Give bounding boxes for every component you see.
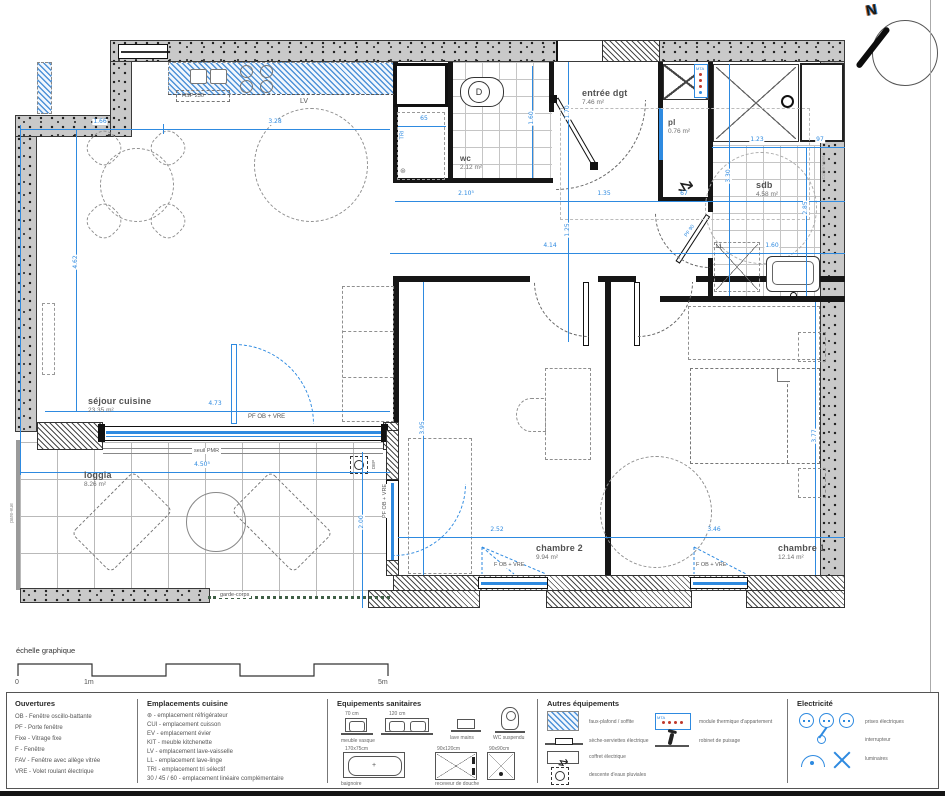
lave-mains-icon — [457, 719, 475, 729]
wall-bottom-band-b — [546, 590, 692, 608]
receveur90-icon — [487, 752, 515, 780]
lv-label: LV — [300, 98, 308, 105]
legend-item: 30 / 45 / 60 - emplacement linéaire comp… — [147, 775, 284, 785]
mta-label: MTA — [696, 66, 704, 71]
dim: 4.14 — [542, 243, 557, 249]
wall-bottom — [393, 575, 845, 591]
dim: 3.95 — [420, 420, 426, 435]
wall-top — [110, 40, 845, 62]
scale-bar — [14, 656, 394, 680]
scale-tick-5m: 5m — [378, 679, 388, 686]
floor-plan: pare-vue HSP 230 LV ⊛ TRI D MTA — [0, 0, 945, 800]
dim: 1.66 — [92, 119, 107, 125]
point-lumineux-icon — [831, 749, 853, 771]
receveur120-icon — [435, 752, 477, 780]
room-sejour-area: 23.35 m² — [88, 407, 114, 414]
mta-icon: MTA — [655, 713, 691, 730]
loggia-low-wall — [20, 588, 210, 603]
page-border-bottom — [0, 791, 945, 796]
dim: 1.70 — [565, 104, 571, 119]
ll-label: LL — [716, 243, 723, 250]
hsp-label: HSP 230 — [182, 93, 204, 99]
legend-item: PF - Porte fenêtre — [15, 724, 63, 734]
room-chambre2-label: chambre 2 — [536, 543, 583, 553]
chambre1-bed — [690, 368, 820, 464]
wall-wc-west — [448, 62, 453, 182]
scale-title: échelle graphique — [16, 646, 75, 655]
applique-icon — [801, 755, 825, 767]
legend-item: module thermique d'appartement — [699, 719, 772, 725]
legend-item: OB - Fenêtre oscillo-battante — [15, 713, 92, 723]
dim: 3.77 — [812, 428, 818, 443]
legend-item: F - Fenêtre — [15, 746, 45, 756]
room-pl-area: 0.76 m² — [668, 128, 690, 135]
entrance-door-gap — [556, 41, 606, 61]
room-wc-area: 2.12 m² — [460, 164, 482, 171]
legend-autres-title: Autres équipements — [547, 699, 619, 708]
interrupteur-icon — [817, 735, 826, 744]
vasque120-icon — [385, 718, 429, 732]
seuil-pmr-line — [103, 448, 383, 454]
radiator — [42, 303, 55, 375]
mta-box: MTA — [694, 64, 708, 98]
legend-item: prises électriques — [865, 719, 904, 725]
descente-ep-icon — [551, 767, 569, 785]
entree-pmr-zone — [560, 108, 810, 220]
legend-item: sèche-serviettes électrique — [589, 738, 648, 744]
room-loggia-area: 8.26 m² — [84, 481, 106, 488]
legend-item: Fixe - Vitrage fixe — [15, 735, 62, 745]
north-label: N — [865, 1, 879, 20]
legend-item: coffret électrique — [589, 754, 626, 760]
window-top-left — [118, 44, 168, 59]
wc-suspendu-icon — [501, 707, 519, 730]
f-ob-vre-c1-label: F OB + VRE — [696, 562, 726, 568]
coffret-electrique-icon: ↯ — [547, 751, 579, 764]
window-chambre2-f — [478, 577, 548, 589]
dim: 1.35 — [596, 191, 611, 197]
legend-panel: Ouvertures OB - Fenêtre oscillo-battante… — [6, 692, 939, 789]
room-sdb-label: sdb — [756, 180, 773, 190]
window-sejour-pf — [103, 426, 383, 441]
room-chambre1-area: 12.14 m² — [778, 554, 804, 561]
dim: 3.46 — [706, 527, 721, 533]
chambre2-chair — [516, 398, 546, 432]
wall-wc-east — [549, 62, 554, 112]
seuil-pmr-label: seuil PMR — [192, 448, 221, 454]
wall-top-left-corner — [110, 61, 132, 137]
dim: 4.73 — [207, 401, 222, 407]
floor-plan-sheet: pare-vue HSP 230 LV ⊛ TRI D MTA — [0, 0, 945, 800]
wall-corridor-south-a — [393, 276, 530, 282]
dim: 4.50⁵ — [193, 462, 211, 468]
room-entree-area: 7.46 m² — [582, 99, 604, 106]
legend-item: FAV - Fenêtre avec allège vitrée — [15, 757, 100, 767]
receveur-label: receveur de douche — [435, 781, 479, 787]
legend-item: luminaires — [865, 756, 888, 762]
robinet-icon — [668, 733, 675, 746]
fridge-icon: ⊛ — [400, 167, 406, 175]
chambre2-wardrobe — [408, 438, 472, 574]
dim: 1.60 — [529, 110, 535, 125]
dim: 97 — [815, 137, 825, 143]
sofa — [342, 286, 394, 422]
kitchen-sink — [190, 67, 230, 91]
legend-item: VRE - Volet roulant électrique — [15, 768, 94, 778]
dep-label: DEP — [371, 460, 376, 469]
wall-hatch-sejour-sw — [37, 422, 103, 450]
legend-sanitaires-title: Equipements sanitaires — [337, 699, 421, 708]
dim: 2.00 — [359, 514, 365, 529]
wall-hatch-c2-sw — [386, 560, 399, 576]
dim: 3.30 — [726, 168, 732, 183]
room-chambre1-label: chambre 1 — [778, 543, 825, 553]
room-wc-label: wc — [460, 154, 471, 163]
prise-icon — [839, 713, 854, 728]
faux-plafond-icon — [547, 711, 579, 731]
prise-icon — [799, 713, 814, 728]
room-sejour-label: séjour cuisine — [88, 396, 151, 406]
dim: 2.10⁵ — [457, 191, 475, 197]
seche-serviettes-icon — [555, 738, 573, 745]
wall-bottom-band-c — [746, 590, 845, 608]
legend-electricite-title: Electricité — [797, 699, 833, 708]
dim: 1.23 — [749, 137, 764, 143]
prise-icon — [819, 713, 834, 728]
legend-item: descente d'eaux pluviales — [589, 772, 646, 778]
legend-ouvertures-title: Ouvertures — [15, 699, 55, 708]
meuble-vasque-label: meuble vasque — [341, 738, 375, 744]
wc-suspendu-label: WC suspendu — [493, 735, 524, 741]
coffre-volet-label: Coffre Volet — [821, 156, 826, 179]
chambre1-nightstand — [798, 468, 826, 498]
legend-item: robinet de puisage — [699, 738, 740, 744]
f-ob-vre-c2-label: F OB + VRE — [494, 562, 524, 568]
soffit-hatch-left — [37, 62, 52, 114]
wall-top-hatched-segment — [602, 40, 660, 62]
dim: 2.85 — [803, 200, 809, 215]
lave-mains-label: lave mains — [450, 735, 474, 741]
room-sdb-area: 4.58 m² — [756, 191, 778, 198]
dim: 3.28 — [267, 119, 282, 125]
vasque70-dim: 70 cm — [345, 711, 359, 717]
wall-corridor-south-b — [598, 276, 636, 282]
dim: 2.52 — [489, 527, 504, 533]
scale-tick-1m: 1m — [84, 679, 94, 686]
legend-item: faux-plafond / soffite — [589, 719, 634, 725]
sejour-rug — [254, 108, 368, 222]
chambre2-desk — [545, 368, 591, 460]
dim: 1.25 — [565, 222, 571, 237]
room-pl-label: pl — [668, 118, 676, 127]
dim: 4.62 — [73, 254, 79, 269]
kitchen-hob — [238, 64, 282, 93]
room-loggia-label: loggia — [84, 470, 112, 480]
dim: 67 — [679, 191, 689, 197]
pf-ob-vre-vertical-label: PF OB + VRE — [382, 484, 388, 518]
fridge-unit — [394, 63, 448, 107]
pf-ob-vre-label: PF OB + VRE — [248, 414, 285, 420]
mta-icon-label: MTA — [657, 715, 665, 720]
vasque70-icon — [345, 718, 367, 732]
shower-head — [781, 95, 794, 108]
wall-bottom-band-a — [368, 590, 480, 608]
wall-left — [15, 136, 37, 432]
room-chambre2-area: 9.94 m² — [536, 554, 558, 561]
baignoire-icon: + — [343, 752, 405, 778]
wc-toilet-letter: D — [468, 81, 490, 103]
room-entree-label: entrée dgt — [582, 88, 628, 98]
dim: 1.60 — [764, 243, 779, 249]
loggia-table — [186, 492, 246, 552]
chambre1-window-fan — [690, 543, 750, 577]
dim: 65 — [419, 116, 429, 122]
scale-tick-0: 0 — [15, 679, 19, 686]
baignoire-label: baignoire — [341, 781, 362, 787]
window-chambre1-f — [690, 577, 748, 589]
tri-label: TRI — [399, 131, 405, 140]
page-border-right — [930, 0, 931, 692]
legend-item: interrupteur — [865, 737, 891, 743]
chambre1-rug — [600, 456, 712, 568]
garde-corps-label: garde-corps — [218, 592, 251, 598]
legend-cuisine-title: Emplacements cuisine — [147, 699, 228, 708]
pare-vue-label: pare-vue — [9, 503, 15, 523]
wc-toilet: D — [460, 77, 504, 107]
sdb-vasque — [766, 256, 820, 292]
chambre1-nightstand — [798, 332, 826, 362]
vasque120-dim: 120 cm — [389, 711, 405, 717]
